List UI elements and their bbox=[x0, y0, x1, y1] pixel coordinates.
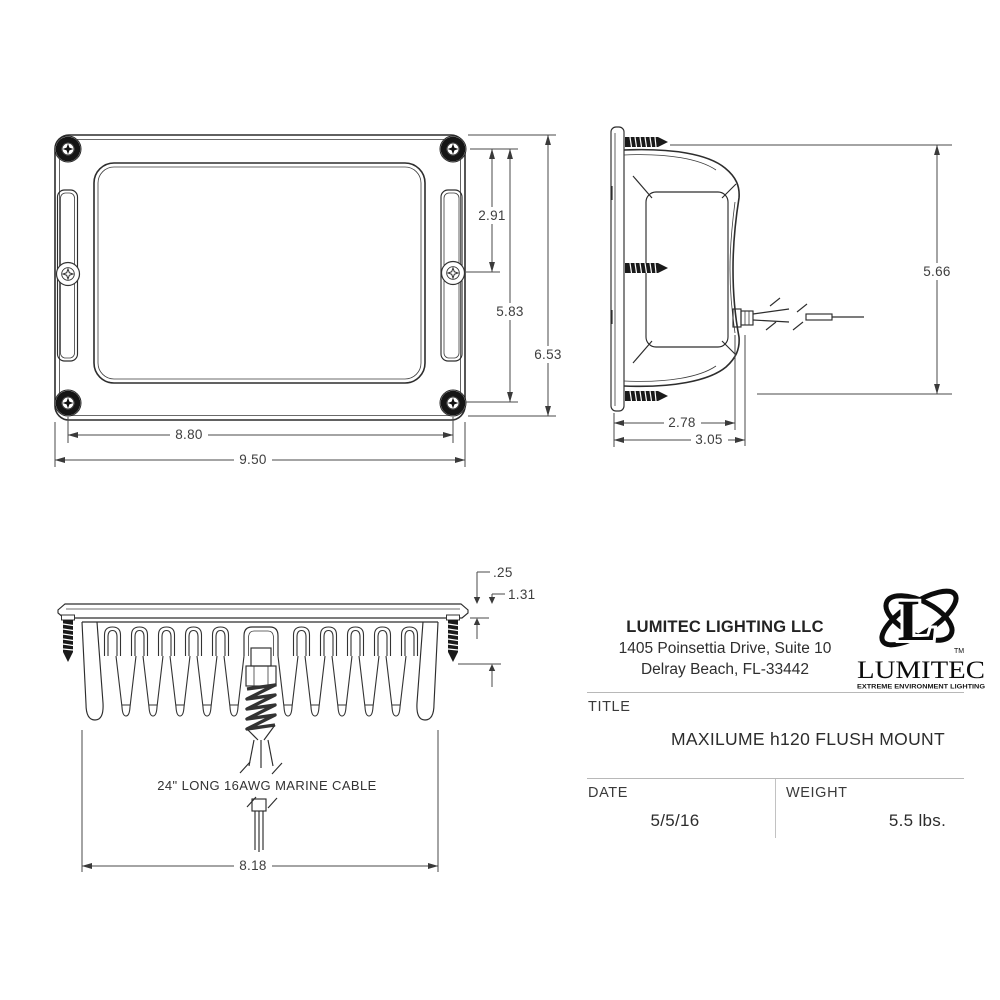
fin-spike bbox=[170, 656, 190, 716]
lens-inner-edge bbox=[98, 167, 421, 379]
cable-lower-segment bbox=[247, 797, 277, 852]
fin-spike bbox=[197, 656, 217, 716]
fin-spike bbox=[305, 656, 325, 716]
drawing-title: MAXILUME h120 FLUSH MOUNT bbox=[628, 729, 988, 750]
lens-outline bbox=[94, 163, 425, 383]
fin-arch-inner bbox=[216, 631, 225, 657]
fin-arch bbox=[105, 627, 121, 656]
date-value: 5/5/16 bbox=[600, 811, 750, 831]
dim-8-80: 8.80 bbox=[175, 427, 202, 442]
fin-arch bbox=[402, 627, 418, 656]
date-label: DATE bbox=[588, 785, 628, 801]
fin-spike bbox=[143, 656, 163, 716]
title-label: TITLE bbox=[588, 699, 630, 715]
fin-arch bbox=[132, 627, 148, 656]
side-view bbox=[611, 127, 864, 411]
front-view-dimensions: 2.91 5.83 6.53 8.80 9.50 bbox=[55, 135, 566, 468]
side-view-dimensions: 5.66 2.78 3.05 bbox=[614, 145, 956, 448]
fin-spike bbox=[332, 656, 352, 716]
dim-9-50: 9.50 bbox=[239, 452, 266, 467]
fin-arch-inner bbox=[162, 631, 171, 657]
corner-screw-bottom-right bbox=[440, 390, 466, 416]
dim-6-53: 6.53 bbox=[534, 347, 561, 362]
fin-spike bbox=[359, 656, 379, 716]
fin-arch-inner bbox=[135, 631, 144, 657]
dim-0-25: .25 bbox=[493, 565, 513, 580]
heatsink-wall-right bbox=[417, 622, 438, 720]
front-view bbox=[55, 135, 466, 420]
cable-gland bbox=[240, 627, 282, 774]
corner-screw-top-right bbox=[440, 136, 466, 162]
heatsink-wall-left bbox=[82, 622, 103, 720]
bezel-outline bbox=[55, 135, 465, 420]
company-info: LUMITEC LIGHTING LLC 1405 Poinsettia Dri… bbox=[575, 617, 875, 680]
logo-wordmark: LUMITEC bbox=[857, 655, 985, 684]
fin-arch-inner bbox=[405, 631, 414, 657]
fin-arch-inner bbox=[108, 631, 117, 657]
lumitec-logo: L TM LUMITEC EXTREME ENVIRONMENT LIGHTIN… bbox=[855, 574, 990, 696]
fin-arch-inner bbox=[189, 631, 198, 657]
dim-3-05: 3.05 bbox=[695, 432, 722, 447]
company-address-line2: Delray Beach, FL-33442 bbox=[575, 659, 875, 680]
fin-arch-inner bbox=[351, 631, 360, 657]
flange-plate bbox=[611, 127, 624, 411]
mount-screw-bottom bbox=[625, 391, 668, 401]
fin-arch bbox=[348, 627, 364, 656]
mount-screw-middle bbox=[625, 263, 668, 273]
dim-2-78: 2.78 bbox=[668, 415, 695, 430]
fin-arch bbox=[159, 627, 175, 656]
fin-arch bbox=[213, 627, 229, 656]
fin-arch-inner bbox=[378, 631, 387, 657]
fin-arch-inner bbox=[324, 631, 333, 657]
drawing-canvas: 2.91 5.83 6.53 8.80 9.50 bbox=[0, 0, 1000, 1000]
cable-label: 24" LONG 16AWG MARINE CABLE bbox=[157, 778, 376, 793]
fin-spike bbox=[224, 656, 244, 716]
technical-drawing-page: 2.91 5.83 6.53 8.80 9.50 bbox=[0, 0, 1000, 1000]
fin-arch bbox=[294, 627, 310, 656]
bottom-view: 24" LONG 16AWG MARINE CABLE bbox=[58, 604, 468, 852]
logo-letter: L bbox=[898, 588, 937, 653]
fin-arch bbox=[321, 627, 337, 656]
corner-screw-top-left bbox=[55, 136, 81, 162]
company-address-line1: 1405 Poinsettia Drive, Suite 10 bbox=[575, 638, 875, 659]
mid-screw-left bbox=[57, 263, 80, 286]
fin-spike bbox=[278, 656, 298, 716]
flange-bar bbox=[58, 604, 468, 618]
weight-value: 5.5 lbs. bbox=[845, 811, 990, 831]
strain-relief-coil bbox=[247, 685, 275, 729]
logo-tm: TM bbox=[954, 648, 964, 655]
cable-exit bbox=[733, 298, 864, 330]
mount-screw-right bbox=[447, 615, 460, 662]
dim-8-18: 8.18 bbox=[239, 858, 266, 873]
fin-spike bbox=[386, 656, 406, 716]
fin-arch bbox=[375, 627, 391, 656]
weight-label: WEIGHT bbox=[786, 785, 848, 801]
mount-screw-top bbox=[625, 137, 668, 147]
fin-spike bbox=[116, 656, 136, 716]
logo-tagline: EXTREME ENVIRONMENT LIGHTING bbox=[857, 684, 985, 691]
corner-screw-bottom-left bbox=[55, 390, 81, 416]
titleblock-rule-top bbox=[587, 692, 964, 693]
mount-screw-left bbox=[62, 615, 75, 662]
dim-5-66: 5.66 bbox=[923, 264, 950, 279]
dim-1-31: 1.31 bbox=[508, 587, 535, 602]
dim-2-91: 2.91 bbox=[478, 208, 505, 223]
dim-5-83: 5.83 bbox=[496, 304, 523, 319]
titleblock-divider bbox=[775, 779, 776, 838]
mid-screw-right bbox=[442, 262, 465, 285]
bezel-inner-edge bbox=[60, 140, 461, 416]
company-name: LUMITEC LIGHTING LLC bbox=[575, 617, 875, 638]
fin-arch bbox=[186, 627, 202, 656]
fin-arch-inner bbox=[297, 631, 306, 657]
